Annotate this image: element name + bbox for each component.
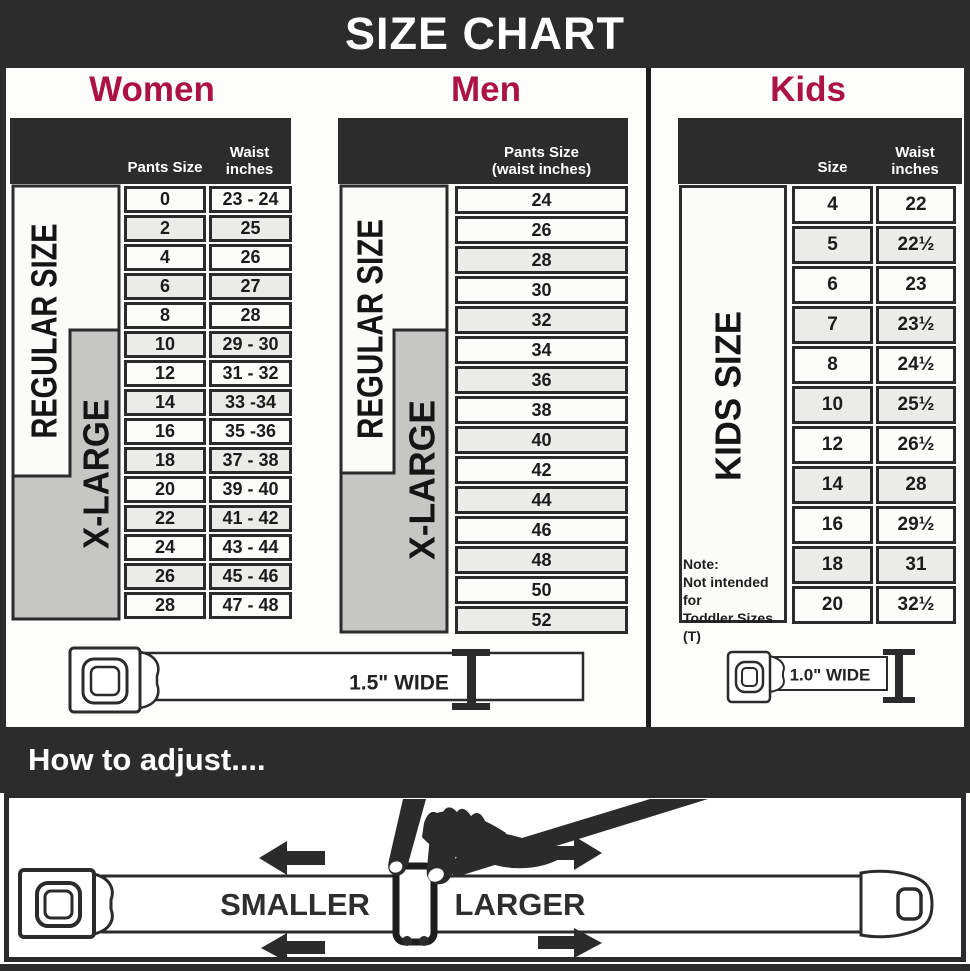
kids-size-cell: 18 [792,546,873,584]
men-pants-size-cell: 34 [455,336,628,364]
kids-belt-illustration: 1.0" WIDE [650,640,966,720]
kids-size-label: KIDS SIZE [708,311,749,481]
larger-label: LARGER [455,887,586,922]
women-waist-cell: 25 [209,215,292,242]
kids-size-cell: 5 [792,226,873,264]
kids-waist-cell: 24½ [876,346,956,384]
kids-size-cell: 8 [792,346,873,384]
men-pants-size-cell: 52 [455,606,628,634]
belt-tip [861,871,932,936]
women-waist-cell: 47 - 48 [209,592,292,619]
women-waist-cell: 37 - 38 [209,447,292,474]
women-pants-size-cell: 24 [124,534,206,561]
frame-border-right [964,68,970,727]
women-waist-cell: 27 [209,273,292,300]
women-pants-size-cell: 8 [124,302,206,329]
women-waist-cell: 26 [209,244,292,271]
women-pants-size-cell: 12 [124,360,206,387]
men-pants-size-cell: 50 [455,576,628,604]
women-section-title: Women [89,70,215,110]
kids-waist-cell: 29½ [876,506,956,544]
seatbelt-buckle-icon [70,648,158,712]
men-size-table: 24 26 28 30 32 34 36 38 40 42 44 46 48 5… [455,186,628,634]
women-waist-cell: 33 -34 [209,389,292,416]
women-table-header: Pants Size Waist inches [10,118,291,184]
women-waist-cell: 31 - 32 [209,360,292,387]
men-pants-size-cell: 36 [455,366,628,394]
seatbelt-buckle-icon [728,652,784,702]
men-pants-size-cell: 38 [455,396,628,424]
men-pants-size-cell: 48 [455,546,628,574]
women-waist-cell: 39 - 40 [209,476,292,503]
women-pants-size-cell: 20 [124,476,206,503]
kids-waist-cell: 28 [876,466,956,504]
kids-size-cell: 20 [792,586,873,624]
smaller-label: SMALLER [220,887,370,922]
kids-size-cell: 4 [792,186,873,224]
kids-size-column-header: Size [792,159,873,176]
kids-waist-cell: 22 [876,186,956,224]
women-pants-size-cell: 6 [124,273,206,300]
kids-belt-width-label: 1.0" WIDE [790,665,871,684]
women-size-table: 0 23 - 24 2 25 4 26 6 27 8 28 10 29 - 30… [124,186,292,619]
women-pants-size-cell: 4 [124,244,206,271]
men-pants-size-cell: 44 [455,486,628,514]
women-pants-size-cell: 16 [124,418,206,445]
adjust-header-bar: How to adjust.... [0,727,970,793]
men-table-header: Pants Size (waist inches) [338,118,628,184]
frame-border-left [0,68,6,727]
women-waist-cell: 45 - 46 [209,563,292,590]
seatbelt-buckle-icon [20,870,112,937]
women-pants-size-cell: 26 [124,563,206,590]
women-waist-cell: 43 - 44 [209,534,292,561]
page-header-bar: SIZE CHART [0,0,970,68]
women-pants-size-cell: 22 [124,505,206,532]
women-pants-size-cell: 14 [124,389,206,416]
kids-waist-cell: 32½ [876,586,956,624]
men-pants-size-cell: 26 [455,216,628,244]
men-pants-size-cell: 32 [455,306,628,334]
kids-waist-cell: 23½ [876,306,956,344]
adjust-heading: How to adjust.... [28,742,266,778]
kids-size-table: 4 22 5 22½ 6 23 7 23½ 8 24½ 10 25½ 12 26… [792,186,956,624]
women-waist-cell: 41 - 42 [209,505,292,532]
women-regular-size-label: REGULAR SIZE [24,224,65,439]
kids-table-header: Size Waist inches [678,118,962,184]
men-regular-size-label: REGULAR SIZE [350,219,391,439]
kids-size-cell: 14 [792,466,873,504]
kids-section-title: Kids [770,70,846,110]
men-pants-size-cell: 40 [455,426,628,454]
kids-size-cell: 10 [792,386,873,424]
kids-waist-cell: 22½ [876,226,956,264]
kids-size-cell: 12 [792,426,873,464]
adult-belt-width-label: 1.5" WIDE [349,672,449,695]
women-waist-cell: 23 - 24 [209,186,292,213]
women-waist-cell: 28 [209,302,292,329]
women-pants-size-cell: 0 [124,186,206,213]
men-pants-size-cell: 42 [455,456,628,484]
men-pants-size-cell: 30 [455,276,628,304]
adult-belt-illustration: 1.5" WIDE [6,640,646,720]
women-size-range-zones: REGULAR SIZE X-LARGE [10,184,122,622]
adjust-belt-illustration: SMALLER LARGER [4,793,966,964]
men-pants-size-cell: 28 [455,246,628,274]
men-xlarge-label: X-LARGE [402,400,443,560]
bottom-frame-edge [0,964,970,971]
kids-waist-cell: 31 [876,546,956,584]
women-waist-cell: 29 - 30 [209,331,292,358]
men-section-title: Men [451,70,521,110]
women-pants-size-cell: 18 [124,447,206,474]
page-title: SIZE CHART [345,8,625,60]
men-pants-size-column-header: Pants Size (waist inches) [455,144,628,179]
men-pants-size-cell: 24 [455,186,628,214]
men-size-range-zones: REGULAR SIZE X-LARGE [338,184,450,635]
kids-waist-cell: 26½ [876,426,956,464]
women-pants-size-cell: 28 [124,592,206,619]
kids-waist-column-header: Waist inches [875,144,955,179]
kids-waist-cell: 25½ [876,386,956,424]
women-pants-size-column-header: Pants Size [124,159,206,176]
women-xlarge-label: X-LARGE [76,399,117,549]
kids-section-divider [646,68,651,727]
men-pants-size-cell: 46 [455,516,628,544]
women-waist-cell: 35 -36 [209,418,292,445]
women-waist-column-header: Waist inches [208,144,291,179]
size-chart-page: SIZE CHART Women Men Kids Pants Size Wai… [0,0,970,971]
women-pants-size-cell: 2 [124,215,206,242]
kids-waist-cell: 23 [876,266,956,304]
kids-size-cell: 16 [792,506,873,544]
kids-size-cell: 6 [792,266,873,304]
kids-note: Note: Not intended for Toddler Sizes (T) [683,556,791,646]
women-pants-size-cell: 10 [124,331,206,358]
kids-size-cell: 7 [792,306,873,344]
